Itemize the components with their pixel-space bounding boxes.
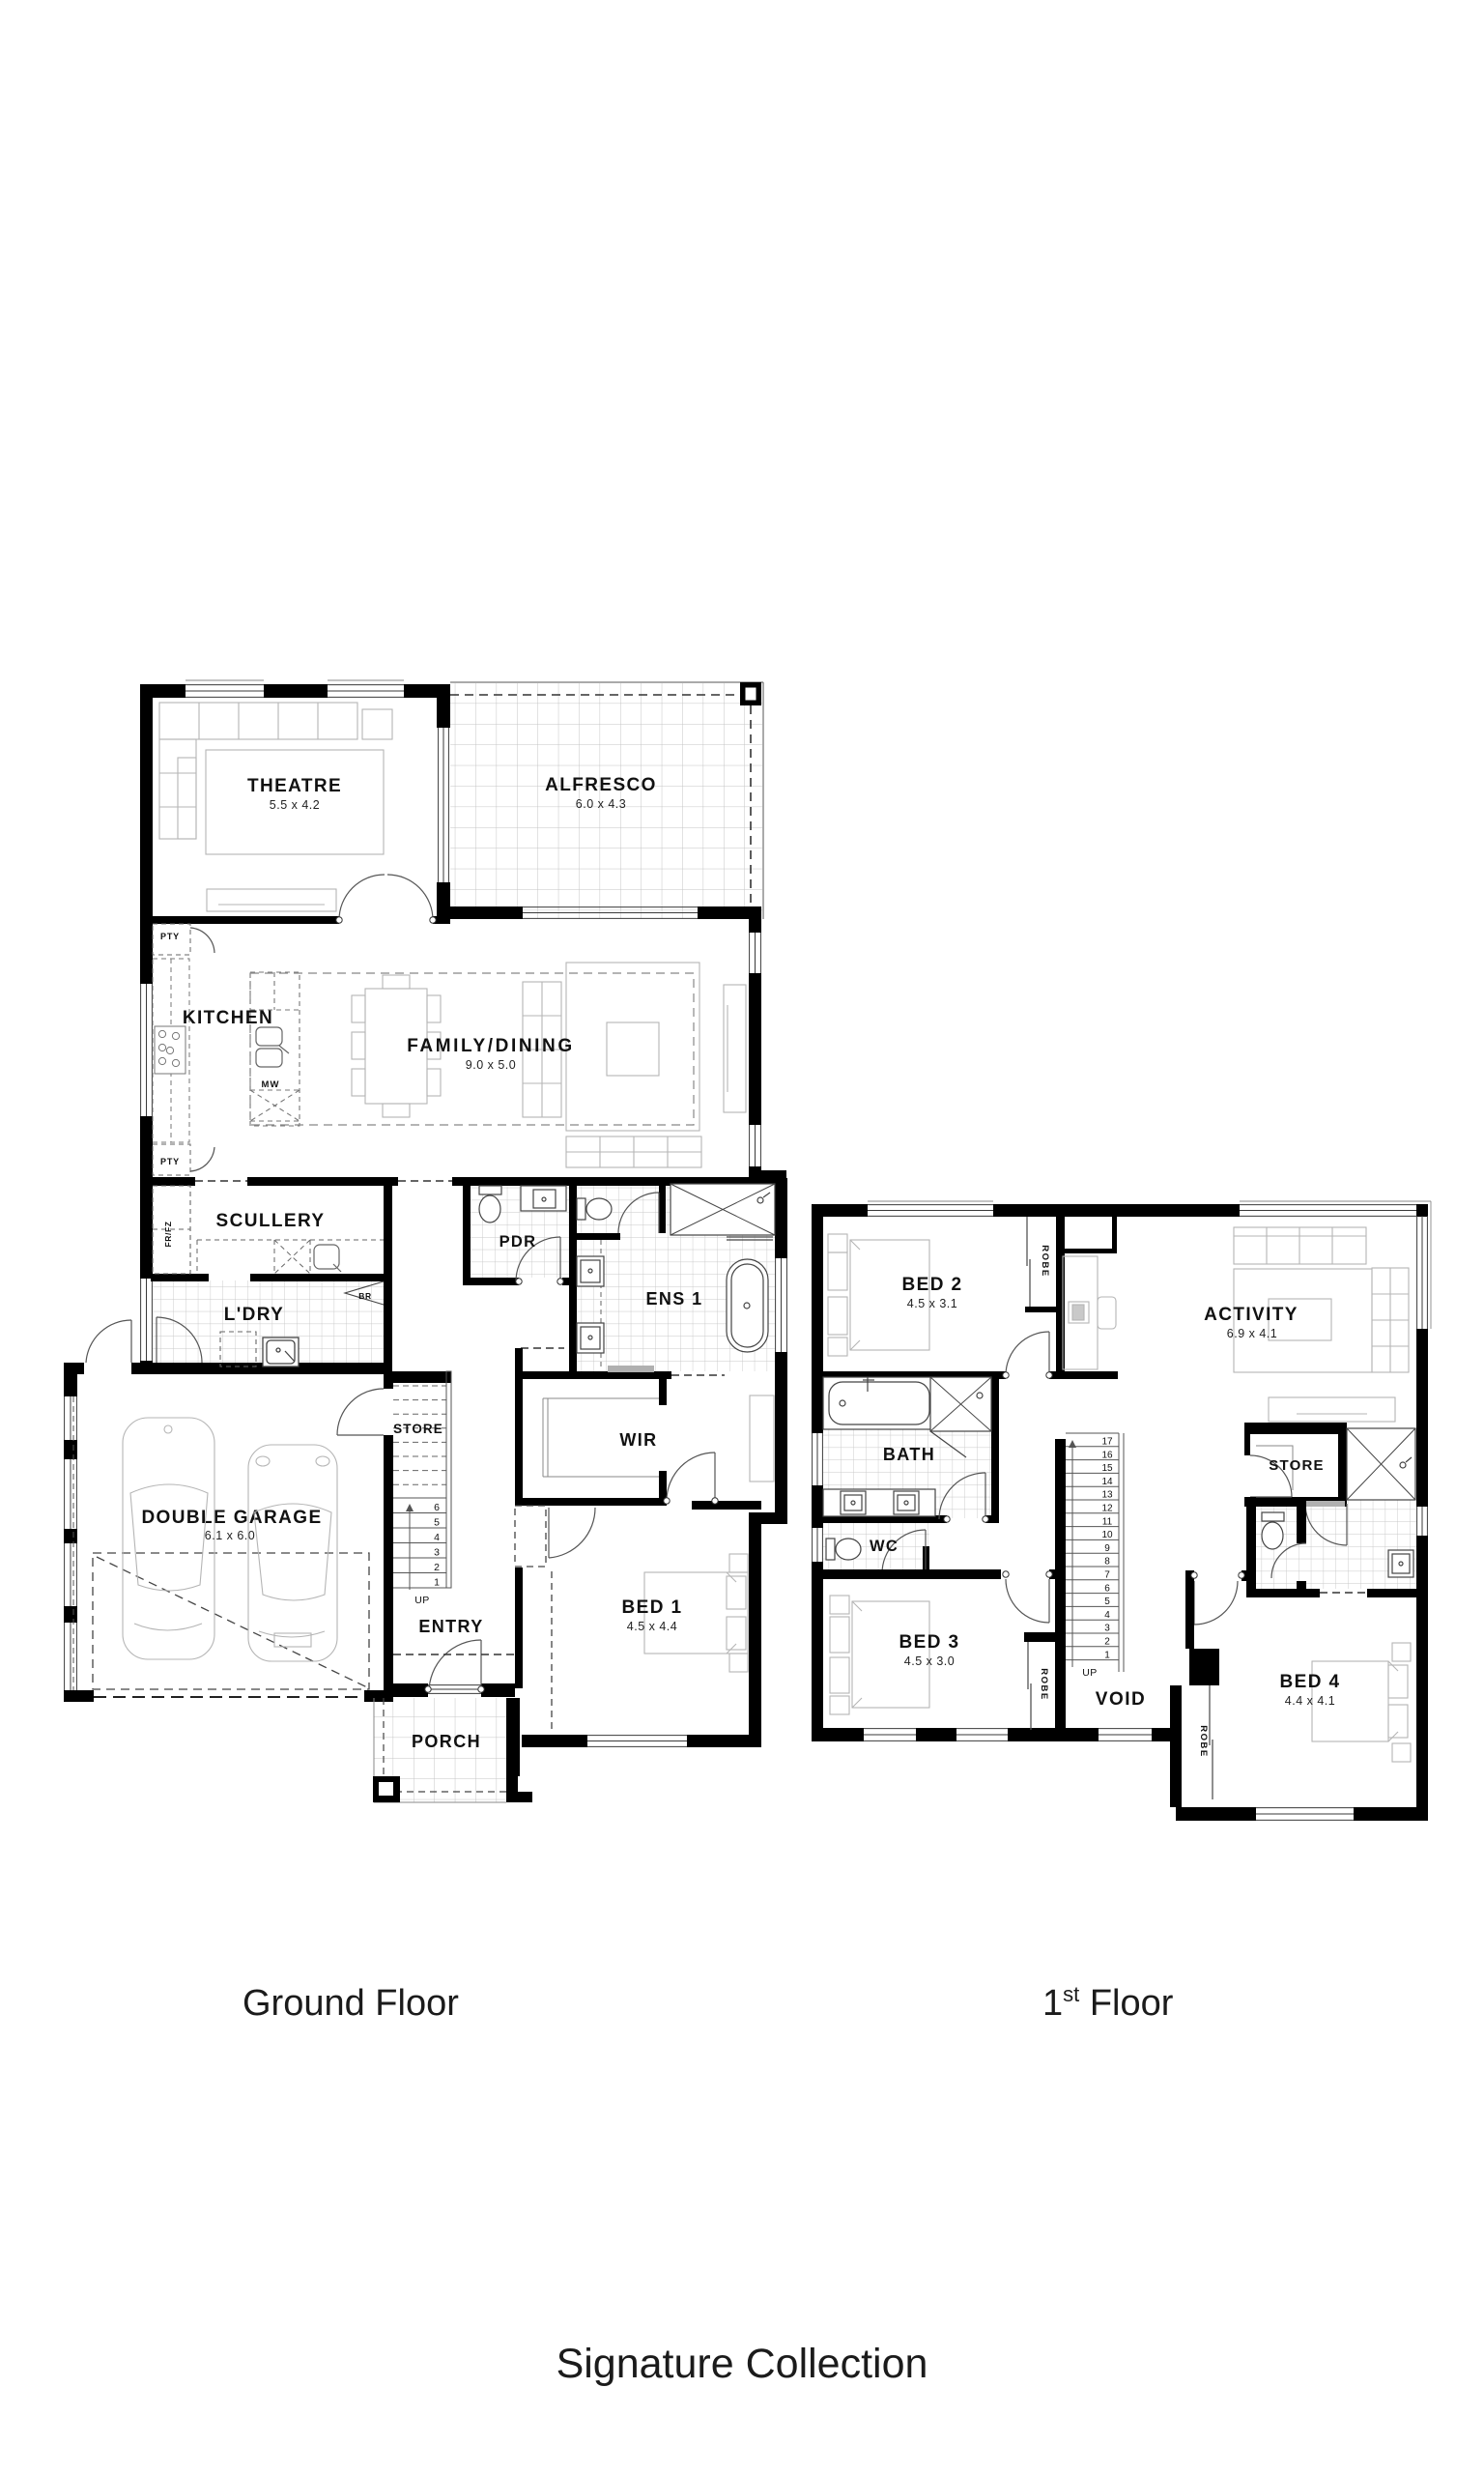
svg-text:13: 13 — [1101, 1490, 1113, 1501]
svg-text:4.5 x 3.0: 4.5 x 3.0 — [904, 1654, 955, 1668]
svg-text:4.4 x 4.1: 4.4 x 4.1 — [1285, 1694, 1335, 1708]
svg-text:L'DRY: L'DRY — [224, 1305, 285, 1325]
svg-text:4.5 x 4.4: 4.5 x 4.4 — [627, 1620, 677, 1633]
svg-text:4: 4 — [1104, 1610, 1110, 1621]
svg-text:VOID: VOID — [1096, 1689, 1146, 1710]
svg-text:6: 6 — [434, 1502, 440, 1513]
svg-text:ACTIVITY: ACTIVITY — [1204, 1305, 1298, 1325]
svg-text:BED 3: BED 3 — [899, 1632, 960, 1653]
svg-text:FAMILY/DINING: FAMILY/DINING — [407, 1036, 575, 1056]
svg-text:3: 3 — [1104, 1624, 1110, 1634]
svg-text:BED 1: BED 1 — [622, 1597, 683, 1618]
svg-text:SCULLERY: SCULLERY — [216, 1211, 326, 1231]
svg-text:STORE: STORE — [1269, 1457, 1324, 1474]
svg-text:3: 3 — [434, 1547, 440, 1559]
svg-text:ROBE: ROBE — [1039, 1668, 1049, 1700]
svg-text:8: 8 — [1104, 1557, 1110, 1568]
svg-text:5: 5 — [434, 1517, 440, 1529]
svg-text:DOUBLE GARAGE: DOUBLE GARAGE — [141, 1508, 322, 1528]
svg-text:1: 1 — [434, 1577, 440, 1589]
svg-text:16: 16 — [1101, 1450, 1113, 1460]
svg-text:BED 2: BED 2 — [902, 1275, 963, 1295]
svg-text:2: 2 — [1104, 1637, 1110, 1648]
svg-text:UP: UP — [1082, 1667, 1098, 1679]
svg-text:ROBE: ROBE — [1040, 1245, 1050, 1277]
svg-text:BED 4: BED 4 — [1280, 1672, 1341, 1692]
svg-text:9.0 x 5.0: 9.0 x 5.0 — [466, 1058, 516, 1072]
svg-text:BATH: BATH — [883, 1445, 935, 1464]
svg-text:11: 11 — [1102, 1516, 1113, 1527]
svg-text:FR/FZ: FR/FZ — [163, 1221, 173, 1247]
svg-text:9: 9 — [1104, 1543, 1110, 1554]
svg-text:PORCH: PORCH — [412, 1732, 481, 1751]
svg-text:Ground Floor: Ground Floor — [243, 1983, 459, 2024]
svg-text:6: 6 — [1104, 1583, 1110, 1594]
svg-text:PTY: PTY — [160, 1157, 180, 1166]
svg-text:10: 10 — [1101, 1530, 1113, 1540]
svg-text:MW: MW — [262, 1079, 280, 1090]
svg-text:6.0 x 4.3: 6.0 x 4.3 — [576, 797, 626, 811]
svg-text:PDR: PDR — [499, 1233, 537, 1251]
svg-text:STORE: STORE — [393, 1422, 443, 1436]
svg-text:UP: UP — [414, 1595, 430, 1606]
svg-text:THEATRE: THEATRE — [247, 776, 342, 796]
svg-text:4: 4 — [434, 1532, 440, 1543]
svg-text:ALFRESCO: ALFRESCO — [545, 775, 657, 795]
svg-text:1: 1 — [1104, 1650, 1110, 1660]
svg-text:17: 17 — [1101, 1437, 1113, 1448]
svg-text:4.5 x 3.1: 4.5 x 3.1 — [907, 1297, 957, 1310]
svg-text:14: 14 — [1101, 1477, 1113, 1487]
svg-text:5.5 x 4.2: 5.5 x 4.2 — [270, 798, 320, 812]
svg-text:12: 12 — [1101, 1504, 1113, 1514]
svg-text:ENTRY: ENTRY — [418, 1617, 483, 1636]
svg-text:WIR: WIR — [619, 1430, 657, 1450]
svg-text:7: 7 — [1104, 1570, 1110, 1581]
svg-text:PTY: PTY — [160, 932, 180, 941]
svg-text:2: 2 — [434, 1562, 440, 1573]
svg-text:15: 15 — [1101, 1463, 1113, 1474]
svg-text:ROBE: ROBE — [1198, 1725, 1209, 1757]
svg-text:WC: WC — [870, 1538, 899, 1555]
svg-text:6.1 x 6.0: 6.1 x 6.0 — [205, 1529, 255, 1542]
svg-text:BR: BR — [358, 1291, 371, 1301]
svg-text:1st Floor: 1st Floor — [1042, 1982, 1174, 2024]
svg-text:5: 5 — [1104, 1597, 1110, 1607]
svg-text:6.9 x 4.1: 6.9 x 4.1 — [1227, 1327, 1277, 1340]
svg-text:KITCHEN: KITCHEN — [183, 1008, 273, 1028]
svg-text:Signature Collection: Signature Collection — [556, 2341, 928, 2387]
svg-text:ENS 1: ENS 1 — [645, 1289, 702, 1309]
